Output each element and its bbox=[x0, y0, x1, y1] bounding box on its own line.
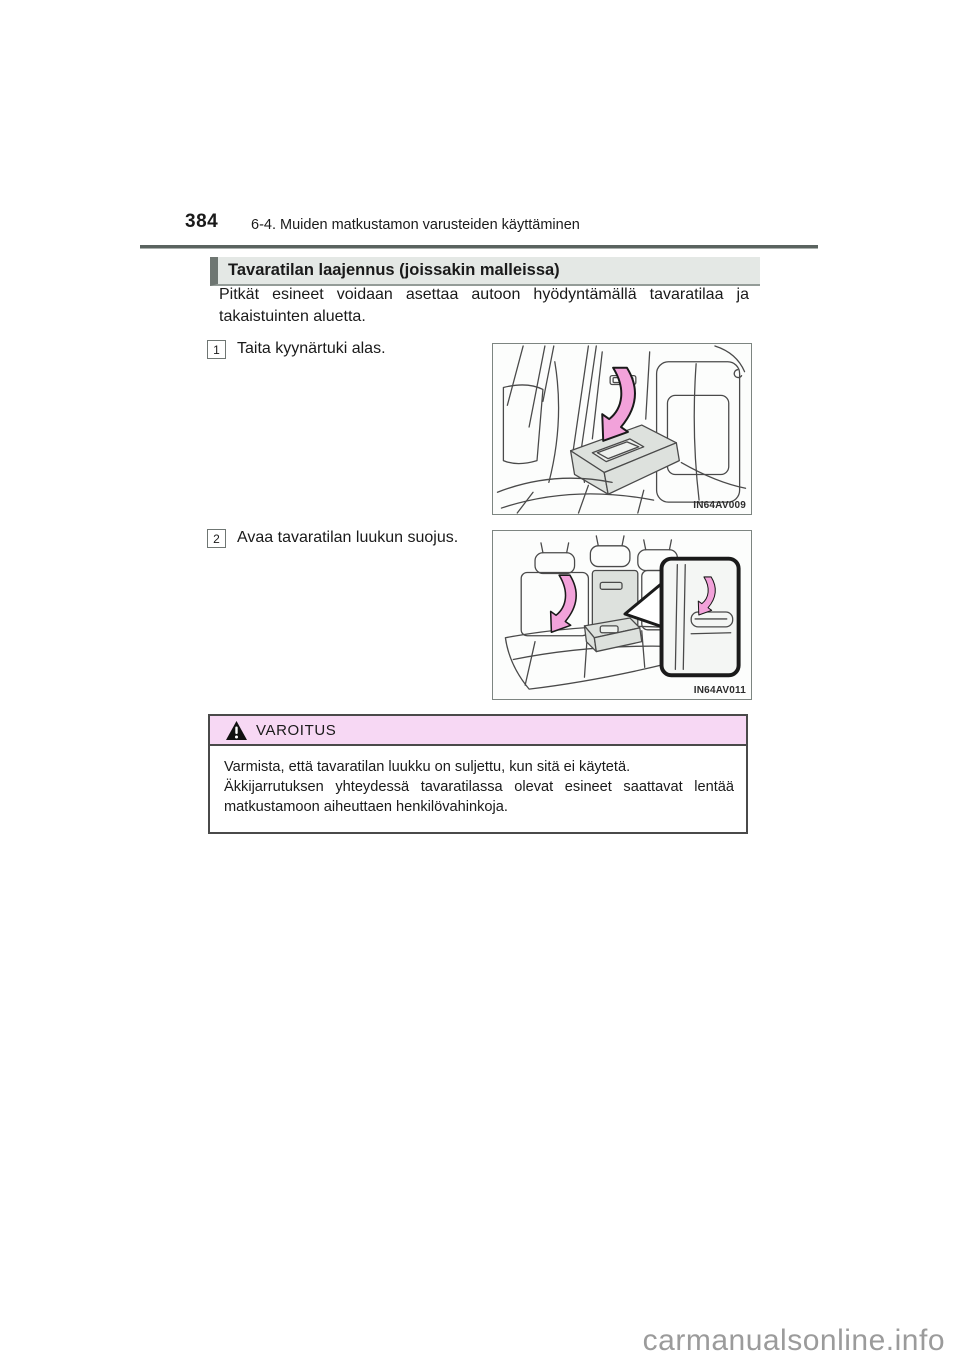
section-heading: Tavaratilan laajennus (joissakin malleis… bbox=[210, 257, 760, 286]
warning-header: VAROITUS bbox=[210, 716, 746, 746]
warning-line-1: Varmista, että tavaratilan luukku on sul… bbox=[224, 757, 734, 777]
step-2: 2 Avaa tavaratilan luukun suojus. bbox=[207, 528, 458, 548]
step-1-number-box: 1 bbox=[207, 340, 226, 359]
chapter-header: 6-4. Muiden matkustamon varusteiden käyt… bbox=[251, 217, 580, 233]
watermark: carmanualsonline.info bbox=[643, 1324, 945, 1358]
figure-armrest-fold: IN64AV009 bbox=[492, 343, 752, 515]
rear-bench-hatch-illustration bbox=[493, 531, 751, 699]
warning-triangle-icon bbox=[226, 721, 247, 740]
manual-page: 384 6-4. Muiden matkustamon varusteiden … bbox=[0, 0, 960, 1358]
step-1: 1 Taita kyynärtuki alas. bbox=[207, 339, 386, 359]
step-2-number-box: 2 bbox=[207, 529, 226, 548]
page-number: 384 bbox=[185, 211, 218, 233]
pink-arrow-icon bbox=[551, 575, 577, 632]
warning-line-2: Äkkijarrutuksen yhteydessä tavaratilassa… bbox=[224, 777, 734, 817]
figure-2-code: IN64AV011 bbox=[694, 685, 746, 696]
section-heading-text: Tavaratilan laajennus (joissakin malleis… bbox=[228, 261, 560, 280]
figure-luggage-hatch: IN64AV011 bbox=[492, 530, 752, 700]
step-2-text: Avaa tavaratilan luukun suojus. bbox=[237, 528, 458, 548]
warning-box: VAROITUS Varmista, että tavaratilan luuk… bbox=[208, 714, 748, 834]
warning-body: Varmista, että tavaratilan luukku on sul… bbox=[210, 746, 746, 832]
rear-seat-armrest-illustration bbox=[493, 344, 751, 514]
warning-title: VAROITUS bbox=[256, 722, 336, 739]
header-rule bbox=[140, 245, 818, 249]
figure-1-code: IN64AV009 bbox=[693, 500, 746, 511]
intro-paragraph: Pitkät esineet voidaan asettaa autoon hy… bbox=[219, 284, 749, 328]
step-1-text: Taita kyynärtuki alas. bbox=[237, 339, 386, 359]
